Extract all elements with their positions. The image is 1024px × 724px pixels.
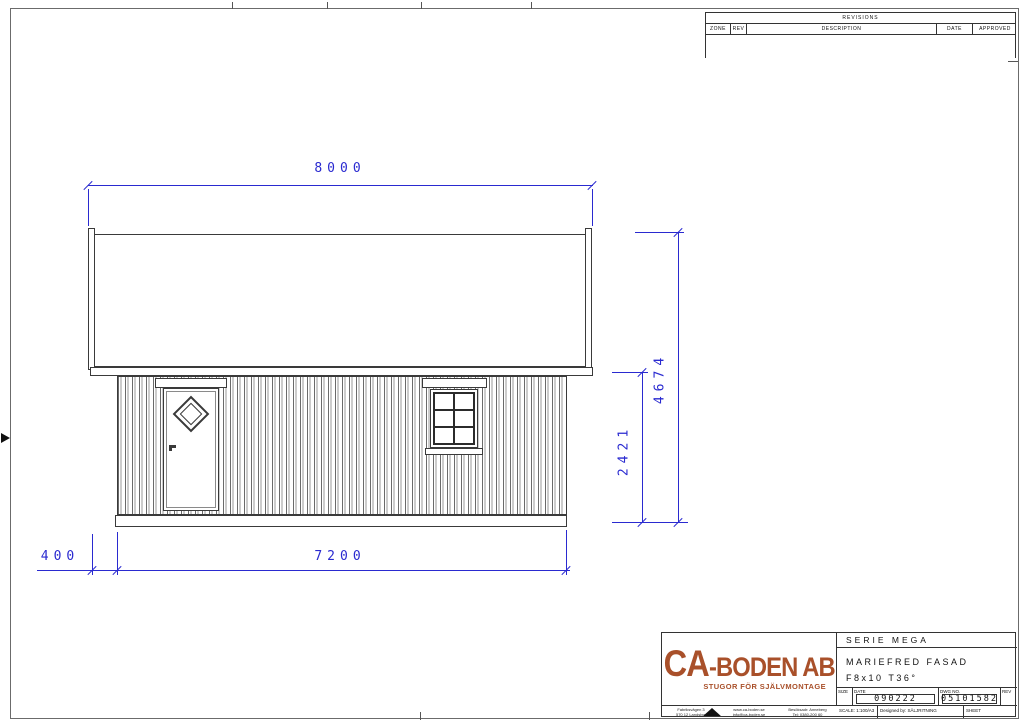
revisions-col-description: DESCRIPTION [747,24,937,34]
window-pane [435,411,453,426]
dim-ext-line [592,189,593,226]
drawing-title: MARIEFRED FASAD [846,654,1017,670]
revisions-empty-row [705,35,1016,58]
logo-tagline: STUGOR FÖR SJÄLVMONTAGE [703,682,826,691]
logo-text-ca: CA [663,643,708,684]
dim-ext-line [612,522,688,523]
door-diamond-window-inner [180,403,203,426]
logo-text-boden-ab: -BODEN AB [709,652,835,682]
dim-total-height: 4674 [653,339,668,419]
scale-row: SCALE: 1:100/A3 Designed by: SÄLJRITNING… [837,706,1017,718]
dim-line-roof-width [88,185,593,186]
revisions-table: REVISIONS ZONE REV DESCRIPTION DATE APPR… [705,12,1016,58]
foundation-plinth [115,515,567,527]
frame-tick-top-2 [327,2,328,9]
size-cell: SIZE [837,688,853,705]
bargeboard-right [585,228,592,370]
window-pane [435,394,453,409]
window-pane [455,411,473,426]
date-cell: DATE 090222 [853,688,939,705]
roof-plane [94,234,586,367]
logo-wordmark: CA-BODEN AB [663,647,834,680]
window-pane [455,394,473,409]
window-sash-6-panes [433,392,475,445]
company-address-strip: Fabriksvägen 3570 12 Landsbro www.ca-bod… [662,706,837,718]
dwg-no-value: 05101582 [942,694,997,704]
size-label: SIZE [838,689,848,694]
frame-tick-top-4 [531,2,532,9]
eave-fascia [90,367,593,376]
window-pane [435,428,453,443]
revisions-col-date: DATE [937,24,973,34]
drawing-sheet: REVISIONS ZONE REV DESCRIPTION DATE APPR… [0,0,1024,724]
address-block-1: Fabriksvägen 3570 12 Landsbro [662,706,720,718]
dim-roof-width: 8000 [300,161,380,176]
revisions-col-rev: REV [731,24,747,34]
dim-line-total-height [678,232,679,523]
revisions-col-approved: APPROVED [973,24,1017,34]
sheet-label: SHEET [964,706,1017,718]
window-pane [455,428,473,443]
window-sill [425,448,483,455]
company-logo: CA-BODEN AB STUGOR FÖR SJÄLVMONTAGE [662,633,837,706]
dwg-no-cell: DWG NO. 05101582 [939,688,1001,705]
dim-wall-height: 2421 [617,411,632,491]
center-mark-left-icon [1,433,10,443]
title-block: CA-BODEN AB STUGOR FÖR SJÄLVMONTAGE Fabr… [661,632,1016,717]
door-handle-knob [169,447,172,451]
date-value: 090222 [856,694,935,704]
series-name: SERIE MEGA [837,633,1017,648]
revisions-header-row: ZONE REV DESCRIPTION DATE APPROVED [705,24,1016,35]
dim-line-wall-height [642,372,643,523]
window-header-trim [422,378,487,388]
drawing-model: F8x10 T36° [846,670,1017,686]
frame-tick-top-1 [232,2,233,9]
rev-cell: REV [1001,688,1017,705]
address-block-2: www.ca-boden.seinfo@ca-boden.se [720,706,778,718]
dim-overhang: 400 [30,549,90,564]
revisions-col-zone: ZONE [706,24,731,34]
dim-wall-width: 7200 [300,549,380,564]
frame-tick-right [1008,61,1018,62]
dim-ext-line [88,189,89,226]
address-block-3: Besöksadr: AnnebergTel: 0380-200 60 [778,706,837,718]
door-header-trim [155,378,227,388]
frame-tick-top-3 [421,2,422,9]
meta-row: SIZE DATE 090222 DWG NO. 05101582 REV [837,688,1017,706]
rev-label: REV [1002,689,1011,694]
scale-label: SCALE: 1:100/A3 [837,706,878,718]
drawing-title-cell: MARIEFRED FASAD F8x10 T36° [837,648,1017,688]
frame-tick-bottom-2 [649,712,650,720]
designed-by-label: Designed by: SÄLJRITNING [878,706,964,718]
revisions-title: REVISIONS [705,12,1016,24]
frame-tick-bottom-1 [420,712,421,720]
